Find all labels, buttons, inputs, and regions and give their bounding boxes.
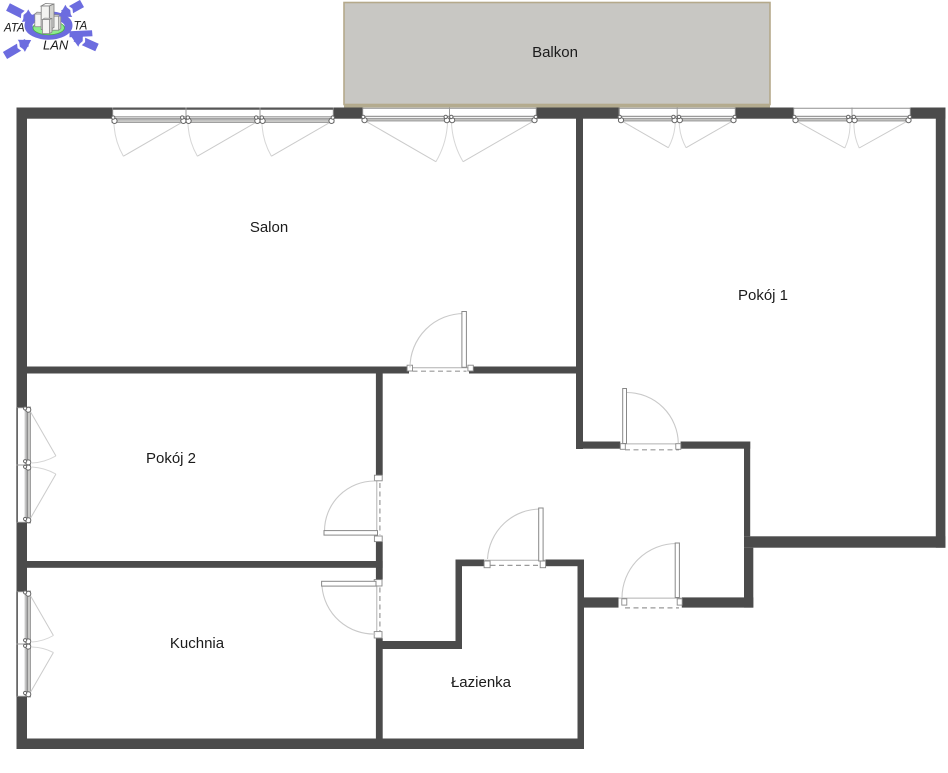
svg-text:Pokój 1: Pokój 1	[738, 287, 788, 304]
svg-text:Łazienka: Łazienka	[451, 674, 512, 691]
svg-text:Salon: Salon	[250, 219, 288, 236]
svg-text:Pokój 2: Pokój 2	[146, 450, 196, 467]
svg-text:Kuchnia: Kuchnia	[170, 635, 225, 652]
svg-text:ATA: ATA	[3, 23, 25, 35]
svg-text:LAN: LAN	[43, 38, 69, 53]
svg-text:TA: TA	[74, 21, 88, 33]
svg-text:Balkon: Balkon	[532, 44, 578, 61]
